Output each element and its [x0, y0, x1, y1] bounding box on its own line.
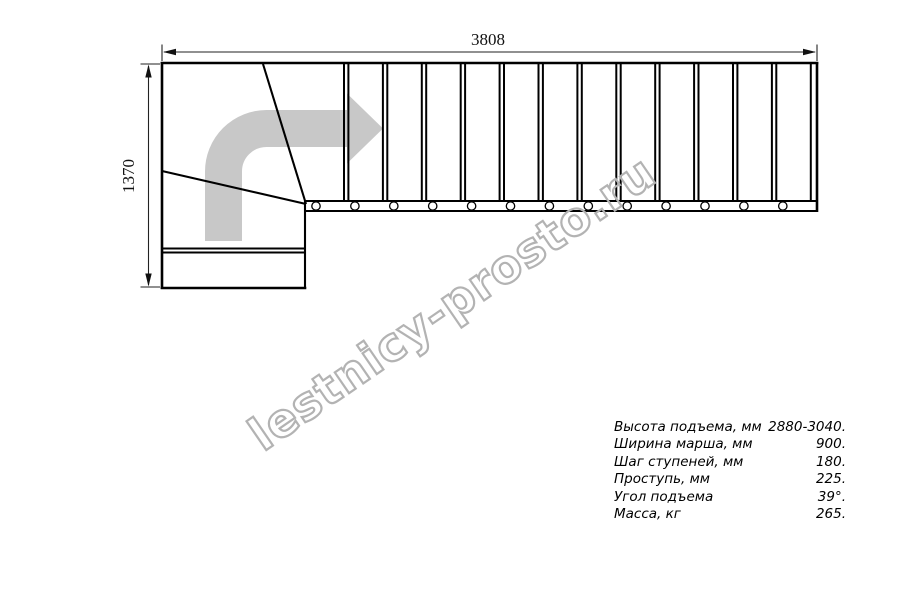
fastener-hole	[740, 202, 748, 210]
direction-arrow	[224, 94, 384, 242]
plan-inner-lines	[162, 64, 817, 288]
spec-label: Высота подъема, мм	[614, 419, 762, 436]
fastener-hole	[584, 202, 592, 210]
direction-arrow-shaft	[224, 129, 349, 242]
spec-value: 225.	[816, 471, 846, 488]
spec-row-step-rise: Шаг ступеней, мм 180.	[614, 454, 846, 471]
spec-value: 2880-3040.	[768, 419, 846, 436]
spec-row-rise-height: Высота подъема, мм 2880-3040.	[614, 419, 846, 436]
dim-arrow-length-left	[163, 49, 176, 55]
fastener-hole	[662, 202, 670, 210]
spec-label: Ширина марша, мм	[614, 436, 753, 453]
dim-arrow-width-bottom	[145, 274, 151, 287]
fastener-hole	[701, 202, 709, 210]
spec-label: Шаг ступеней, мм	[614, 454, 743, 471]
fastener-hole	[467, 202, 475, 210]
spec-row-tread-depth: Проступь, мм 225.	[614, 471, 846, 488]
spec-row-rise-angle: Угол подъема 39°.	[614, 489, 846, 506]
spec-row-flight-width: Ширина марша, мм 900.	[614, 436, 846, 453]
fastener-hole	[390, 202, 398, 210]
spec-value: 180.	[816, 454, 846, 471]
dimension-total-length: 3808	[471, 30, 505, 49]
spec-value: 900.	[816, 436, 846, 453]
fastener-hole	[429, 202, 437, 210]
spec-label: Проступь, мм	[614, 471, 710, 488]
fastener-hole	[506, 202, 514, 210]
fastener-hole	[312, 202, 320, 210]
fastener-hole	[351, 202, 359, 210]
spec-value: 265.	[816, 506, 846, 523]
dimension-total-width: 1370	[119, 159, 138, 193]
fastener-hole	[623, 202, 631, 210]
spec-row-mass: Масса, кг 265.	[614, 506, 846, 523]
spec-label: Угол подъема	[614, 489, 713, 506]
spec-value: 39°.	[818, 489, 846, 506]
treads-layer	[312, 64, 811, 210]
specifications-list: Высота подъема, мм 2880-3040. Ширина мар…	[614, 419, 846, 523]
dim-arrow-width-top	[145, 65, 151, 78]
spec-label: Масса, кг	[614, 506, 681, 523]
plan-outline	[161, 62, 819, 289]
dim-arrow-length-right	[803, 49, 816, 55]
direction-arrow-head	[347, 94, 383, 164]
fastener-hole	[779, 202, 787, 210]
fastener-hole	[545, 202, 553, 210]
staircase-plan-page: 3808 1370 lestnicy-prosto.ru Высота подъ…	[0, 0, 900, 600]
